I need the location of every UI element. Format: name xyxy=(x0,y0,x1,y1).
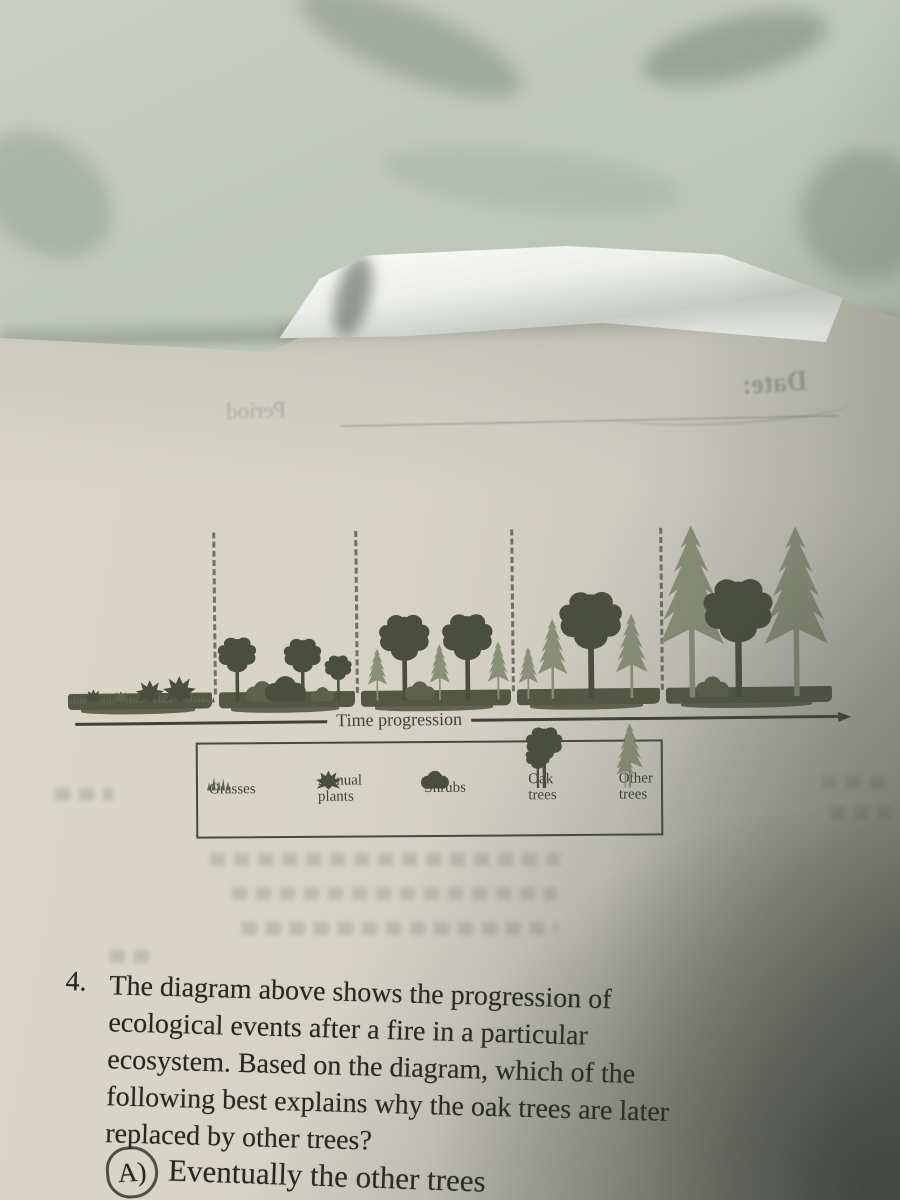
legend-item-annual-plants: Annual plants xyxy=(315,774,362,806)
time-axis-label: Time progression xyxy=(327,709,471,732)
marble-vein xyxy=(286,0,535,120)
oak-tree-icon xyxy=(525,744,551,788)
annual-plant-icon xyxy=(315,770,342,790)
marble-vein xyxy=(636,0,835,100)
legend-item-shrubs: Shrubs xyxy=(421,781,466,797)
answer-label: A) xyxy=(117,1156,148,1189)
stage-separator-line xyxy=(354,531,359,693)
legend-box: GrassesAnnual plantsShrubsOak treesOther… xyxy=(196,739,664,838)
question-number: 4. xyxy=(61,966,110,1152)
bleed-smudge xyxy=(822,776,894,789)
legend-item-other-trees: Other trees xyxy=(616,772,653,804)
oak-tree-icon xyxy=(701,573,776,698)
arrowhead-icon xyxy=(838,711,851,721)
oak-tree-icon xyxy=(556,586,624,699)
grass-icon xyxy=(198,693,215,702)
conifer-tree-icon xyxy=(615,724,643,788)
bleed-smudge xyxy=(210,853,560,866)
bleed-smudge xyxy=(55,788,113,801)
question-block: 4. The diagram above shows the progressi… xyxy=(61,966,673,1168)
legend-item-oak-trees: Oak trees xyxy=(525,772,557,804)
time-axis-line xyxy=(471,715,838,721)
grass-icon xyxy=(206,777,232,790)
oak-tree-icon xyxy=(323,653,353,701)
question-text: The diagram above shows the progression … xyxy=(105,967,673,1168)
time-axis-line xyxy=(75,721,327,726)
marble-vein xyxy=(0,105,138,286)
bleed-smudge xyxy=(232,887,557,900)
stage-separator-line xyxy=(510,529,515,691)
bleed-smudge xyxy=(242,922,557,935)
shrub-icon xyxy=(421,770,449,789)
conifer-tree-icon xyxy=(517,647,539,699)
bleed-smudge xyxy=(830,806,892,819)
conifer-tree-icon xyxy=(486,641,510,699)
pencil-circle-annotation: A) xyxy=(104,1145,160,1200)
marble-vein xyxy=(776,126,900,304)
legend-item-grasses: Grasses xyxy=(206,782,256,798)
bleed-smudge xyxy=(110,950,155,963)
marble-vein xyxy=(378,134,683,225)
photo-of-worksheet: Date: Period Time progression GrassesAnn… xyxy=(0,0,900,1200)
